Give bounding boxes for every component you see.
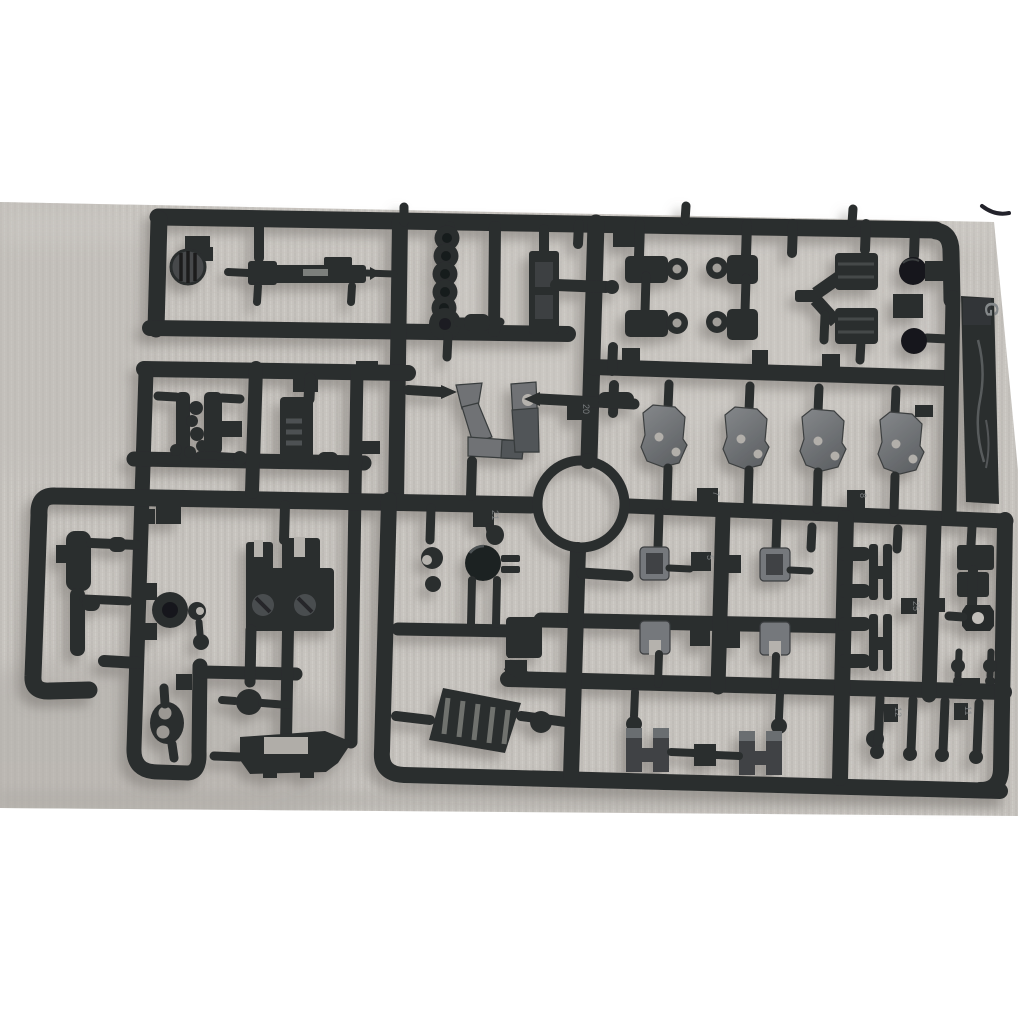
svg-text:7: 7 bbox=[711, 491, 721, 496]
svg-text:21: 21 bbox=[490, 510, 500, 520]
svg-text:20: 20 bbox=[581, 404, 591, 414]
svg-text:11: 11 bbox=[963, 706, 973, 715]
svg-text:5: 5 bbox=[705, 555, 715, 560]
svg-text:8: 8 bbox=[858, 493, 868, 498]
svg-text:12: 12 bbox=[893, 707, 903, 717]
svg-text:25: 25 bbox=[911, 601, 921, 611]
svg-text:G: G bbox=[980, 302, 1001, 317]
